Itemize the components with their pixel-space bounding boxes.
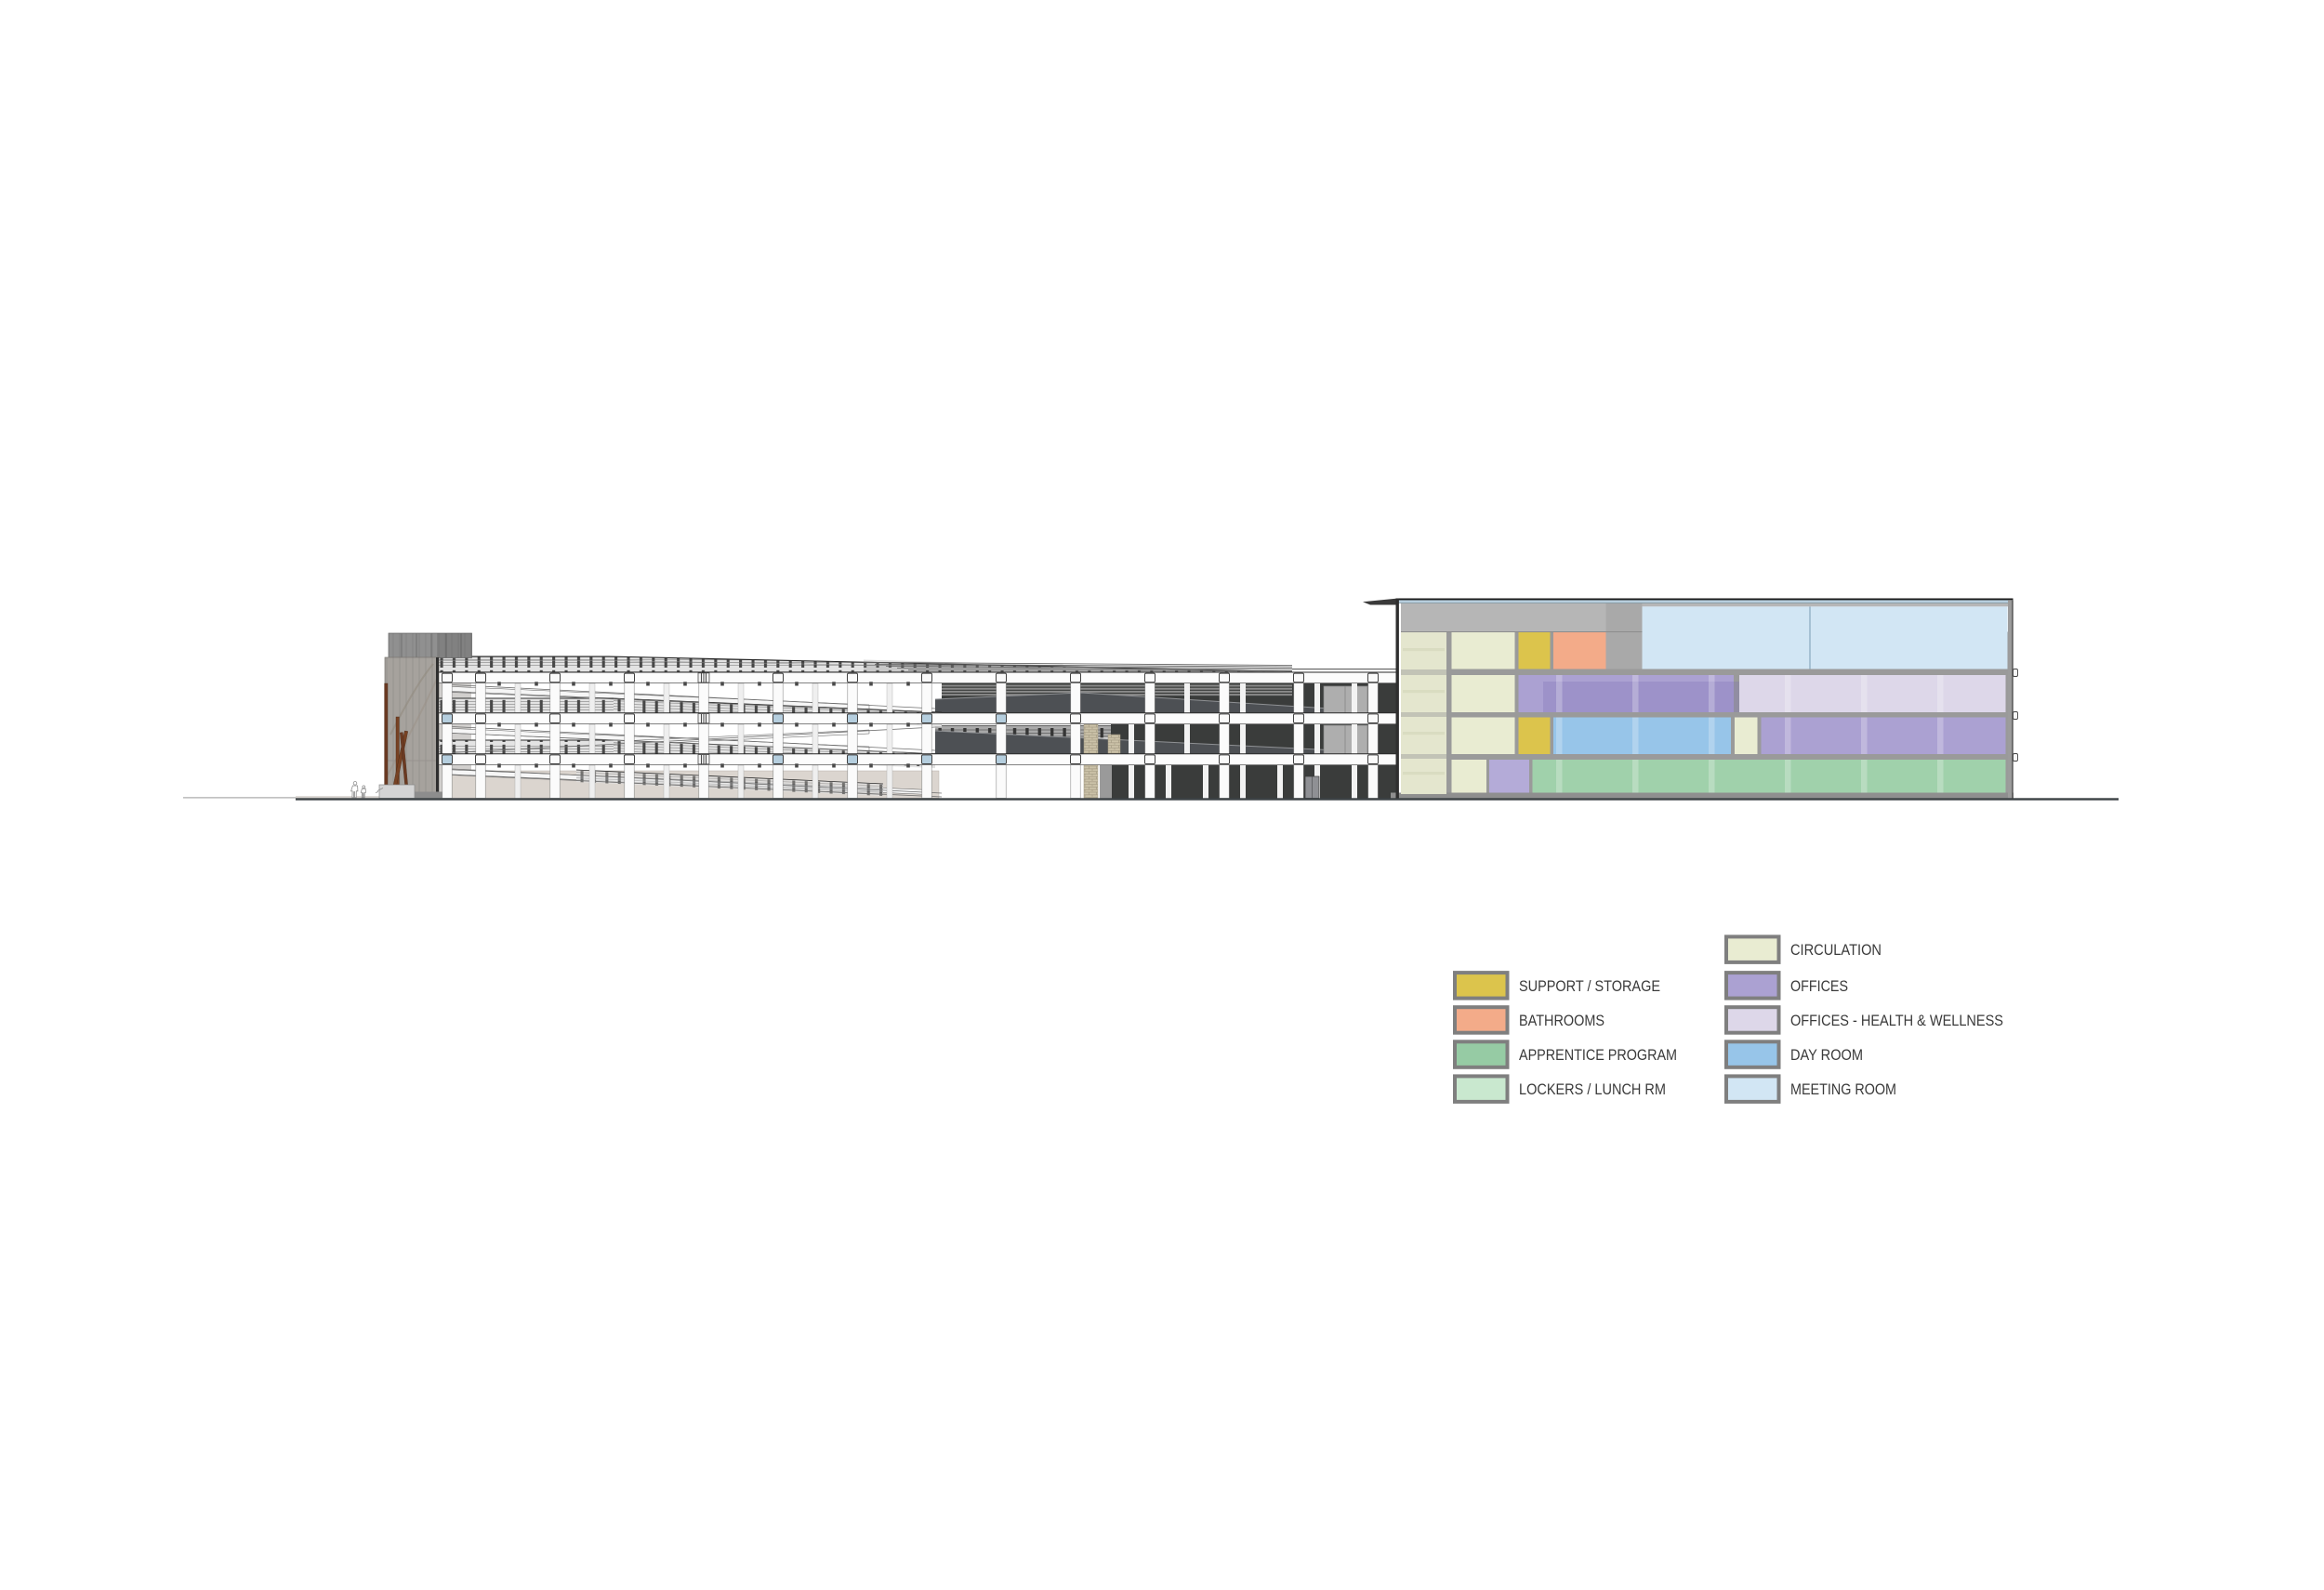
svg-text:CIRCULATION: CIRCULATION [1790,941,1882,959]
svg-text:LOCKERS / LUNCH RM: LOCKERS / LUNCH RM [1519,1080,1666,1098]
svg-text:DAY ROOM: DAY ROOM [1790,1046,1863,1064]
svg-text:MEETING ROOM: MEETING ROOM [1790,1080,1896,1098]
svg-text:BATHROOMS: BATHROOMS [1519,1012,1604,1029]
svg-text:OFFICES: OFFICES [1790,977,1848,995]
svg-text:SUPPORT / STORAGE: SUPPORT / STORAGE [1519,977,1660,995]
svg-text:APPRENTICE PROGRAM: APPRENTICE PROGRAM [1519,1046,1677,1064]
svg-text:OFFICES - HEALTH & WELLNESS: OFFICES - HEALTH & WELLNESS [1790,1012,2003,1029]
